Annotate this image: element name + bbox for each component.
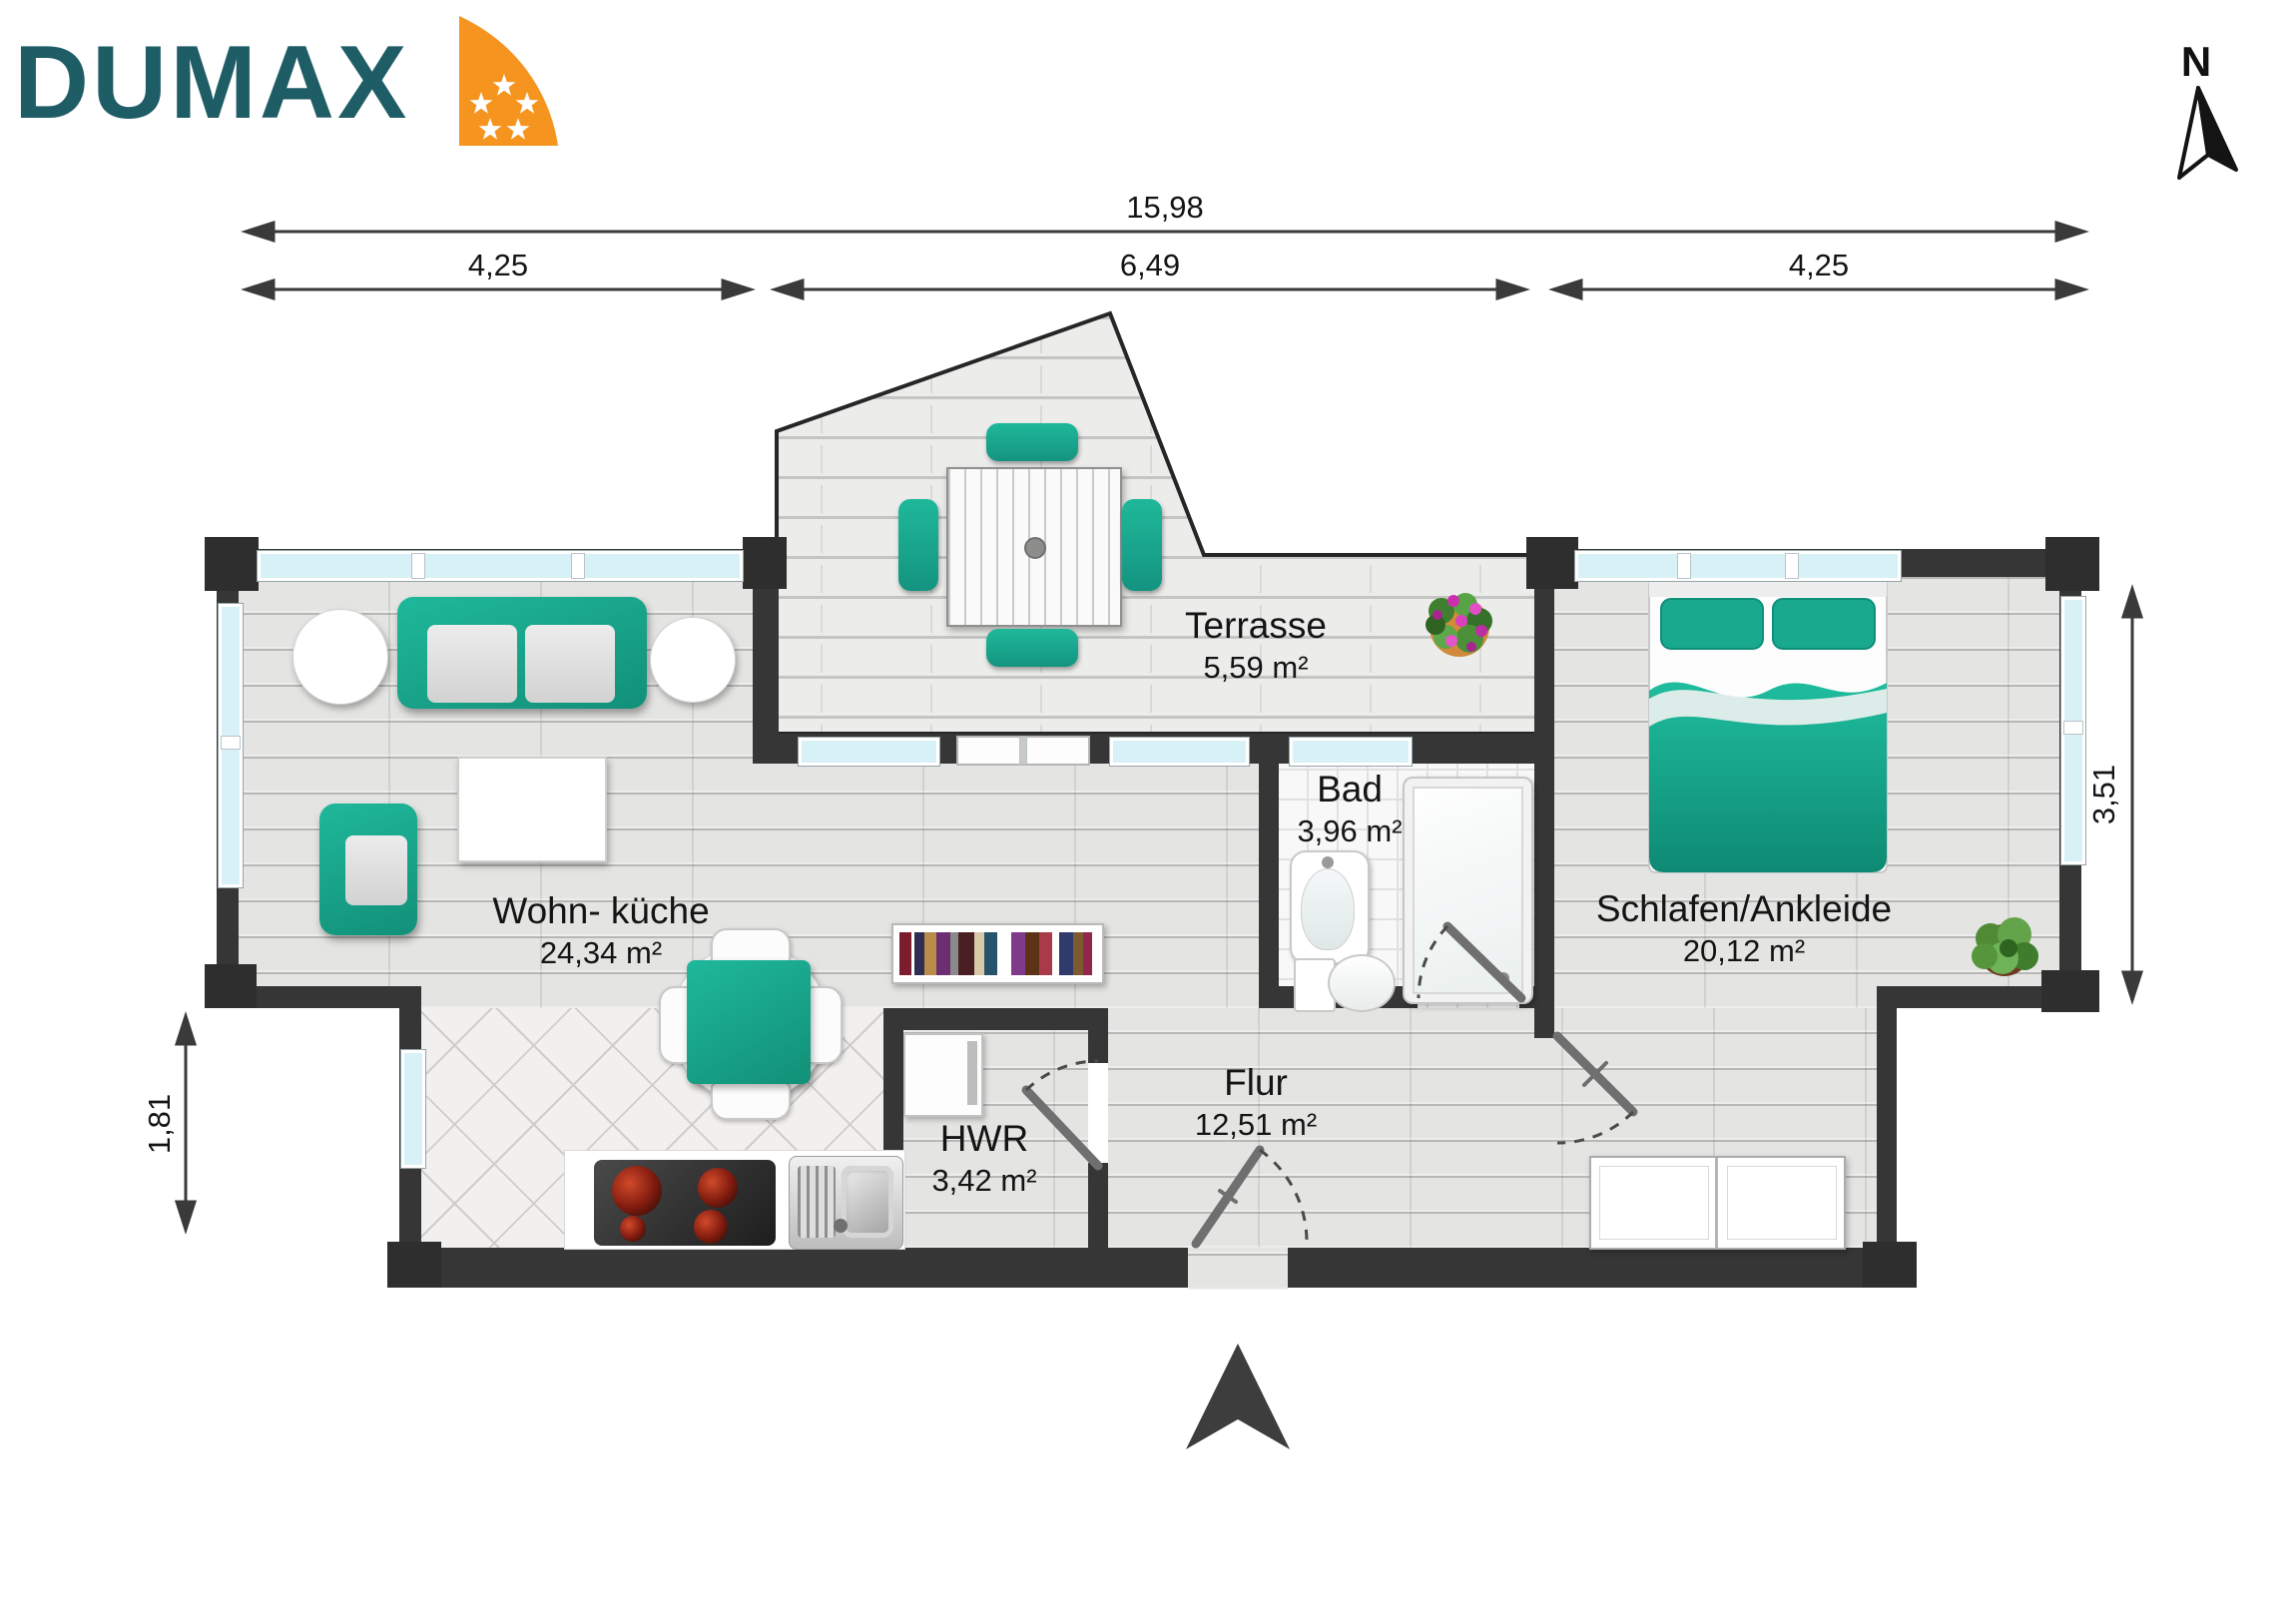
door-divider (1020, 738, 1026, 764)
side-table-left (292, 609, 388, 705)
window-mullion (2064, 722, 2082, 734)
burner (612, 1166, 662, 1216)
room-label-bad: Bad 3,96 m² (1297, 767, 1402, 850)
window-bedroom-top (1575, 551, 1901, 581)
room-area: 12,51 m² (1195, 1106, 1317, 1144)
sink-faucet (834, 1219, 848, 1233)
wall-bedroom-left-stub (1534, 1008, 1554, 1038)
corner-block (2045, 537, 2099, 591)
wall-hwr-top (883, 1008, 1108, 1030)
room-label-schlafen: Schlafen/Ankleide 20,12 m² (1596, 886, 1892, 970)
dining-chair-right (807, 986, 843, 1064)
room-area: 20,12 m² (1596, 932, 1892, 970)
dim-segment-right: 4,25 (1789, 248, 1849, 283)
dining-tablecloth (687, 960, 811, 1084)
window-mullion (572, 554, 584, 578)
wall-hwr-right-b (1088, 1163, 1108, 1248)
room-area: 5,59 m² (1185, 649, 1327, 687)
wardrobe-divider (1715, 1158, 1718, 1248)
wall-bottom-left (399, 1248, 1188, 1288)
wardrobe (1589, 1156, 1846, 1250)
window-living-left (219, 604, 243, 887)
wardrobe-panel-line (1599, 1166, 1709, 1240)
terrace-chair-top (986, 423, 1078, 461)
room-name: Bad (1297, 767, 1402, 812)
window-terrace-right (1110, 738, 1249, 766)
dining-chair-bottom (711, 1082, 791, 1120)
shower-drain (1497, 972, 1509, 984)
armchair-cushion (345, 835, 407, 905)
sofa-cushion (427, 625, 517, 703)
room-name: Schlafen/Ankleide (1596, 886, 1892, 932)
wall-bedroom-left (1534, 577, 1554, 1008)
floor-entrance-threshold (1188, 1248, 1288, 1290)
bath-sink-bowl (1301, 868, 1355, 950)
terrace-table-pole (1024, 537, 1046, 559)
bath-sink (1290, 850, 1370, 964)
room-area: 24,34 m² (492, 934, 709, 972)
room-label-terrasse: Terrasse 5,59 m² (1185, 603, 1327, 687)
sofa-cushion (525, 625, 615, 703)
terrace-chair-right (1122, 499, 1162, 591)
washing-machine (903, 1033, 983, 1117)
room-label-flur: Flur 12,51 m² (1195, 1060, 1317, 1144)
corner-block (205, 964, 257, 1008)
armchair (319, 804, 417, 935)
window-mullion (1786, 554, 1798, 578)
corner-block (387, 1242, 441, 1288)
dim-segment-mid: 6,49 (1120, 248, 1180, 283)
dim-total-width: 15,98 (1126, 190, 1204, 226)
sink-basin (842, 1166, 893, 1238)
shower (1403, 777, 1533, 1004)
terrace-door (956, 736, 1090, 766)
burner (620, 1216, 646, 1242)
north-arrow-icon (2179, 88, 2236, 178)
window-mullion (222, 737, 240, 749)
room-label-hwr: HWR 3,42 m² (931, 1116, 1036, 1200)
room-name: Terrasse (1185, 603, 1327, 649)
corner-block (205, 537, 259, 591)
side-table-right (650, 617, 736, 703)
window-mullion (1678, 554, 1690, 578)
corner-block (1863, 1242, 1917, 1288)
cooktop (594, 1160, 776, 1246)
terrace-flowers (1426, 593, 1492, 657)
corner-block (1526, 537, 1578, 589)
kitchen-sink (789, 1156, 903, 1250)
window-mullion (412, 554, 424, 578)
corner-block (743, 537, 787, 589)
logo-sail-icon (459, 16, 558, 146)
burner (694, 1210, 728, 1244)
room-name: Flur (1195, 1060, 1317, 1106)
window-kitchen-left (401, 1050, 425, 1168)
bookshelf (891, 923, 1104, 984)
window-living-top (258, 551, 743, 581)
sink-drainboard (798, 1166, 836, 1238)
sofa (397, 597, 647, 709)
dim-segment-left: 4,25 (468, 248, 528, 283)
toilet-bowl (1328, 954, 1396, 1012)
burner (698, 1168, 738, 1208)
terrace-chair-left (898, 499, 938, 591)
bath-sink-tap (1322, 856, 1334, 868)
room-area: 3,42 m² (931, 1162, 1036, 1200)
compass-north-label: N (2181, 38, 2211, 86)
dim-left-height: 1,81 (142, 1094, 178, 1154)
window-bedroom-right (2061, 597, 2085, 864)
corner-block (2041, 970, 2099, 1012)
dim-right-height: 3,51 (2086, 765, 2122, 824)
floor-plan: DUMAX N 15,98 4,25 6,49 4,25 1,81 3,51 W… (0, 0, 2296, 1623)
books (899, 932, 1092, 975)
wall-bad-left (1259, 764, 1279, 1008)
room-name: HWR (931, 1116, 1036, 1162)
wall-bottom-right (1288, 1248, 1897, 1288)
washing-machine-door (967, 1041, 977, 1105)
brand-logo-text: DUMAX (14, 24, 409, 143)
wardrobe-panel-line (1727, 1166, 1837, 1240)
terrace-chair-bottom (986, 629, 1078, 667)
window-bad (1290, 738, 1412, 766)
entrance-arrow-icon (1186, 1344, 1290, 1449)
room-name: Wohn- küche (492, 888, 709, 934)
wall-hwr-right-a (1088, 1008, 1108, 1063)
window-terrace-left (799, 738, 939, 766)
room-label-wohnkueche: Wohn- küche 24,34 m² (492, 888, 709, 972)
room-area: 3,96 m² (1297, 812, 1402, 850)
coffee-table (457, 757, 607, 862)
terrace-table (946, 467, 1122, 627)
